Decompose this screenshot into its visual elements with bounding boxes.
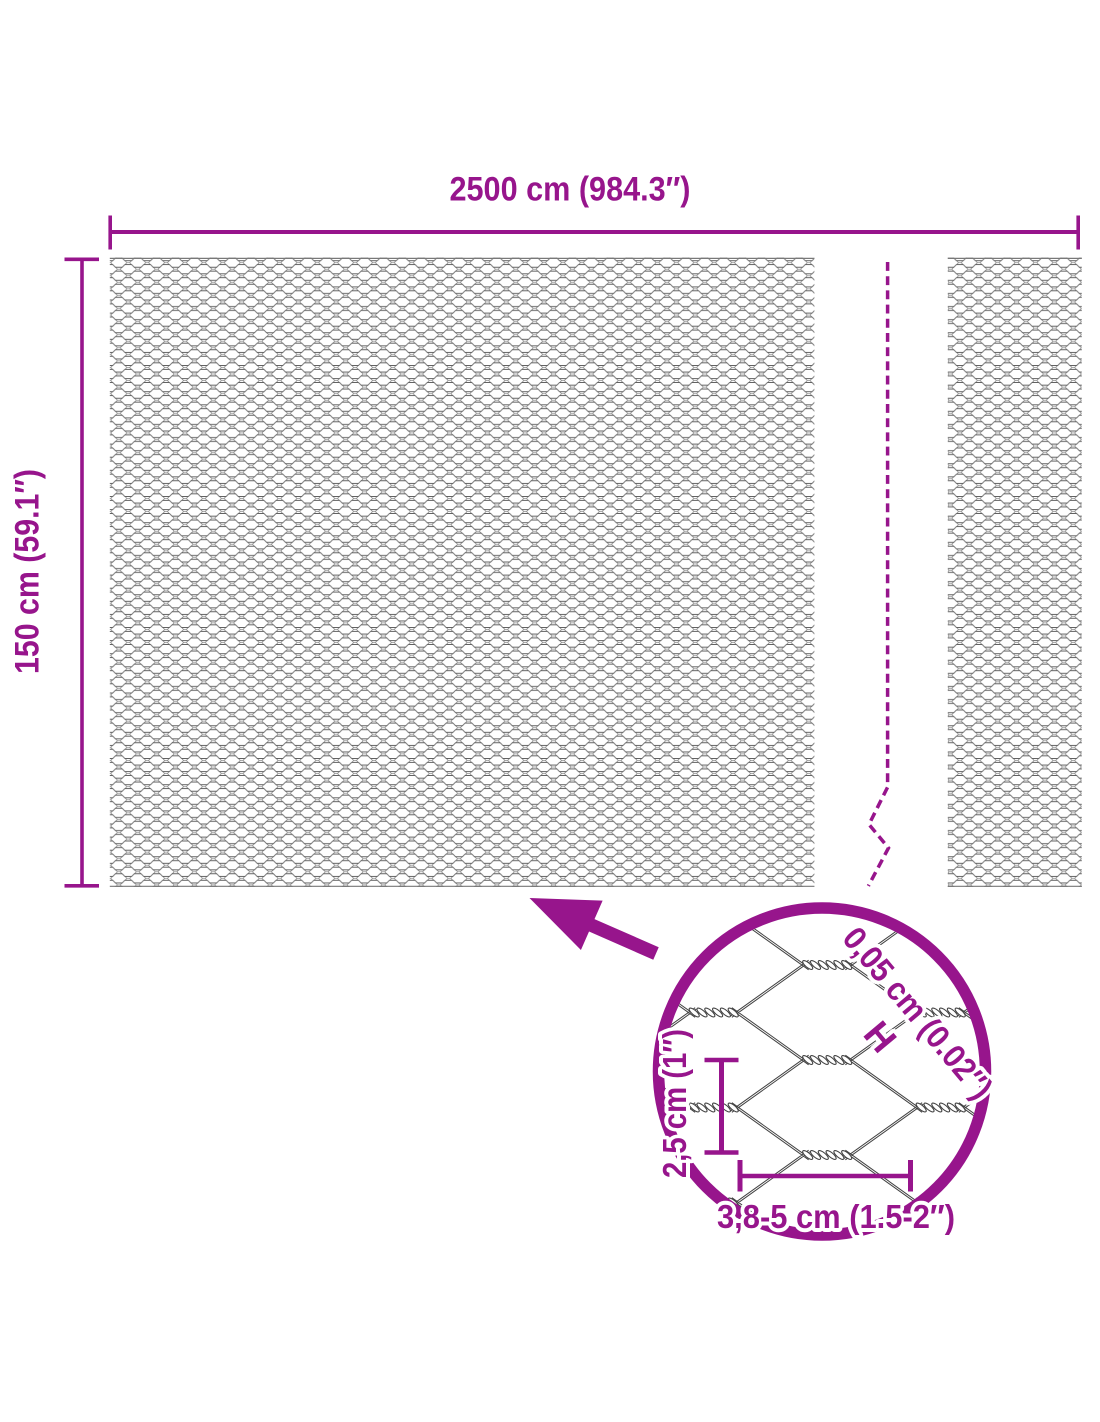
svg-text:2,5 cm (1″): 2,5 cm (1″) xyxy=(656,1029,693,1178)
svg-text:2500 cm (984.3″): 2500 cm (984.3″) xyxy=(450,171,691,209)
svg-text:3,8-5 cm (1.5-2″): 3,8-5 cm (1.5-2″) xyxy=(717,1198,955,1235)
svg-text:150 cm (59.1″): 150 cm (59.1″) xyxy=(9,469,47,674)
